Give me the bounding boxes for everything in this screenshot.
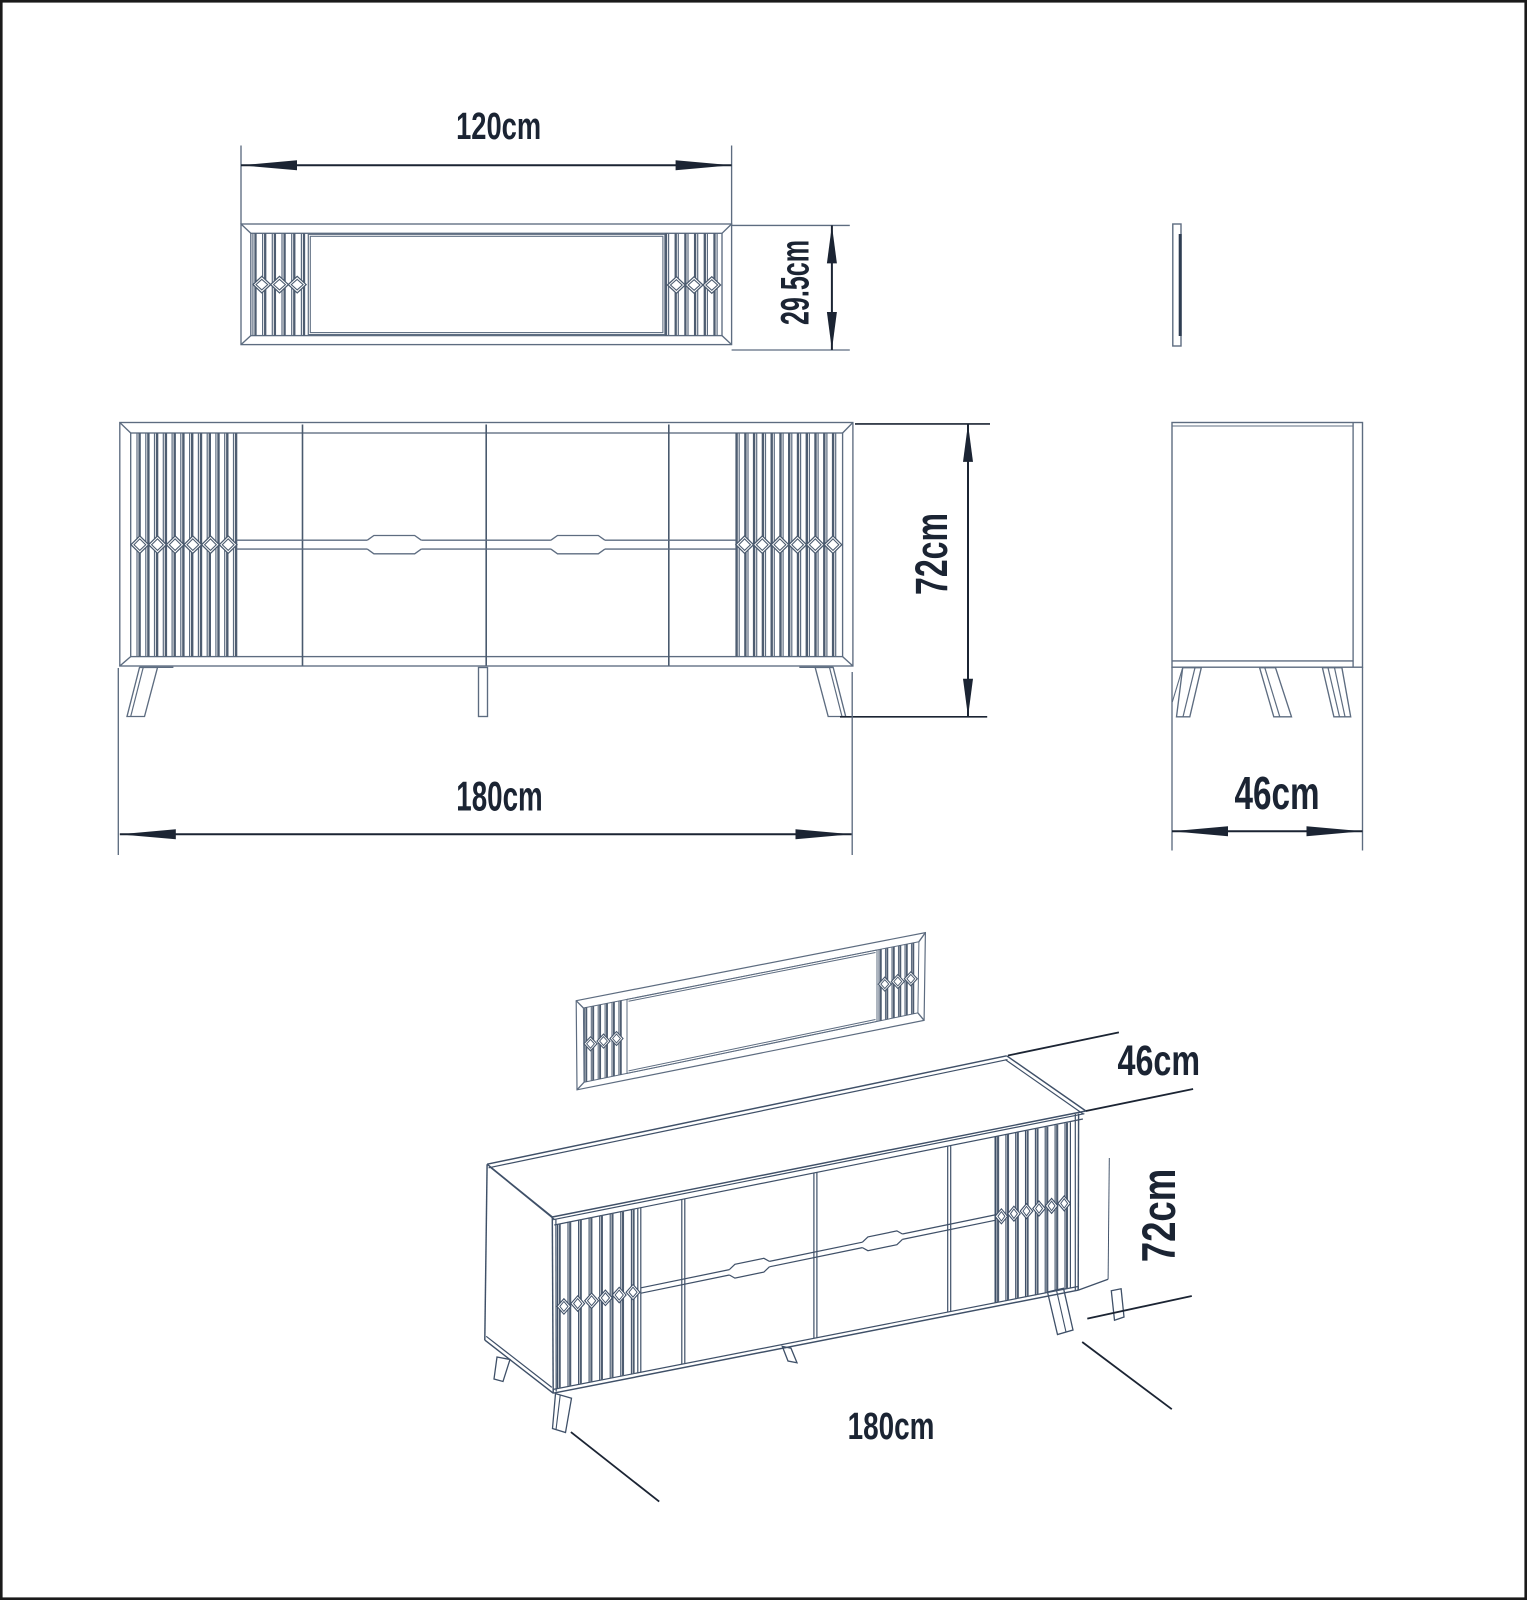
svg-text:120cm: 120cm [456,106,541,148]
svg-text:72cm: 72cm [1132,1169,1185,1263]
svg-text:29.5cm: 29.5cm [773,240,817,325]
svg-text:72cm: 72cm [906,513,957,595]
svg-text:46cm: 46cm [1118,1037,1201,1085]
svg-text:180cm: 180cm [456,773,542,820]
svg-text:46cm: 46cm [1235,767,1320,819]
svg-text:180cm: 180cm [848,1406,935,1448]
